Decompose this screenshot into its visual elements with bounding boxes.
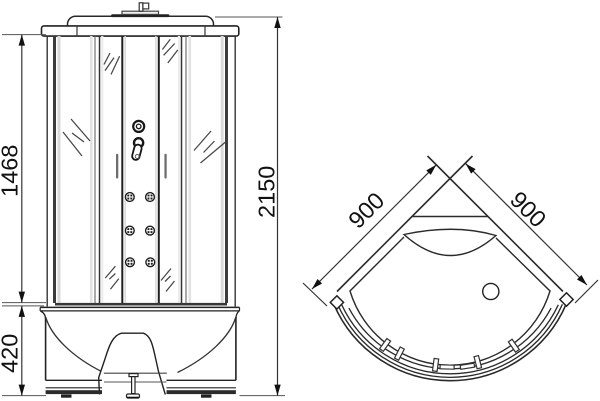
svg-text:1468: 1468 <box>0 145 22 197</box>
svg-text:2150: 2150 <box>253 166 279 218</box>
svg-text:420: 420 <box>0 334 23 373</box>
